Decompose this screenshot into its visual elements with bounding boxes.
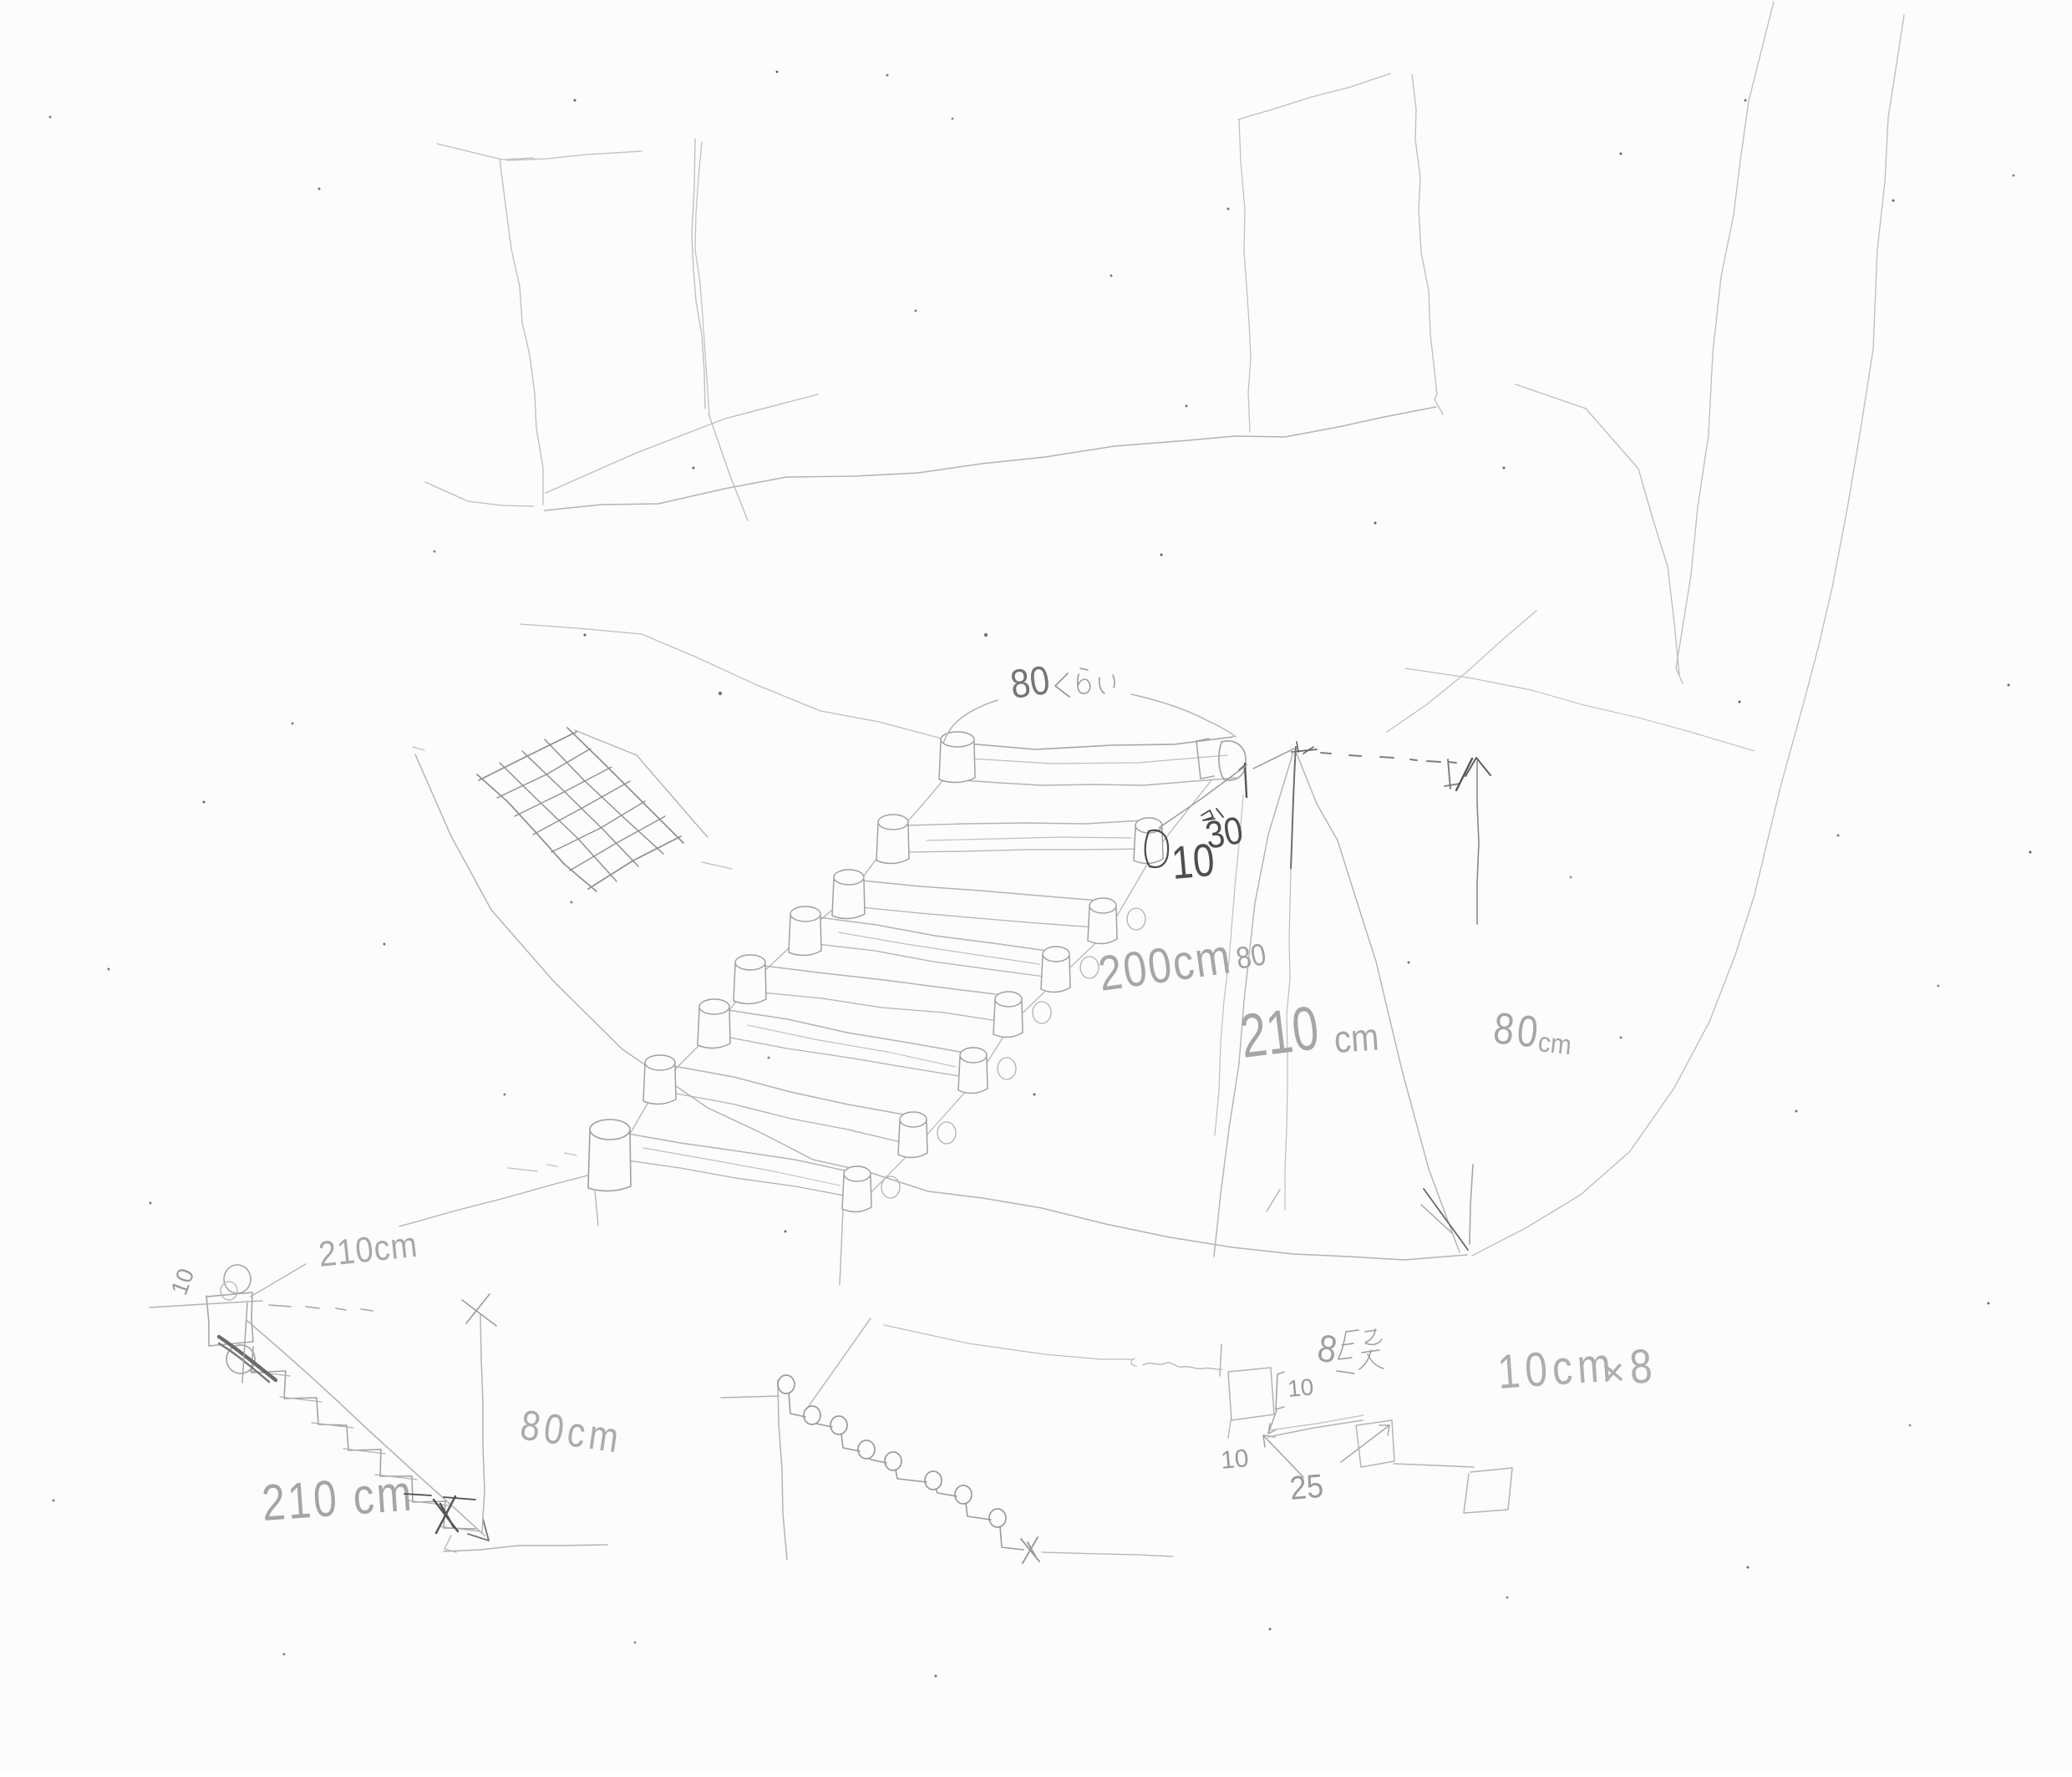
svg-text:80: 80: [1233, 937, 1268, 976]
svg-text:30: 30: [1202, 809, 1247, 857]
svg-text:210 cm: 210 cm: [260, 1465, 415, 1531]
svg-text:cm: cm: [1333, 1016, 1380, 1062]
svg-text:×: ×: [1600, 1350, 1627, 1396]
svg-text:8: 8: [1628, 1339, 1653, 1394]
svg-text:80: 80: [1008, 657, 1053, 707]
svg-text:80: 80: [1491, 1004, 1544, 1058]
svg-text:10: 10: [1220, 1444, 1250, 1475]
svg-text:25: 25: [1288, 1468, 1325, 1507]
svg-text:10cm: 10cm: [1496, 1338, 1617, 1399]
svg-text:210: 210: [1237, 993, 1323, 1071]
svg-text:10: 10: [1287, 1373, 1315, 1402]
svg-text:cm: cm: [1536, 1026, 1573, 1061]
